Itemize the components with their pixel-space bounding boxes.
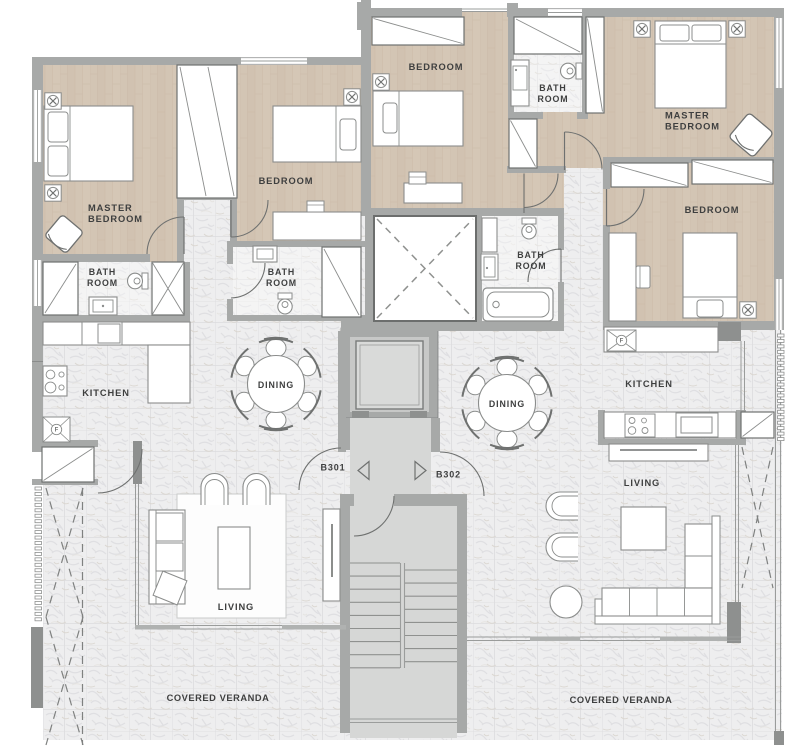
svg-text:ROOM: ROOM: [87, 278, 118, 288]
svg-text:B302: B302: [436, 470, 461, 480]
svg-text:F: F: [55, 428, 59, 434]
svg-text:B301: B301: [320, 463, 345, 473]
svg-text:LIVING: LIVING: [218, 602, 254, 612]
svg-text:BEDROOM: BEDROOM: [665, 122, 720, 132]
svg-text:BEDROOM: BEDROOM: [259, 176, 314, 186]
svg-text:ROOM: ROOM: [538, 94, 569, 104]
svg-text:DINING: DINING: [258, 380, 294, 390]
svg-text:KITCHEN: KITCHEN: [625, 379, 673, 389]
svg-text:BEDROOM: BEDROOM: [685, 205, 740, 215]
svg-text:COVERED VERANDA: COVERED VERANDA: [167, 693, 270, 703]
svg-text:ROOM: ROOM: [266, 278, 297, 288]
svg-text:F: F: [620, 339, 624, 345]
svg-text:ROOM: ROOM: [516, 261, 547, 271]
svg-text:BATH: BATH: [539, 83, 566, 93]
svg-text:BATH: BATH: [517, 250, 544, 260]
svg-text:BEDROOM: BEDROOM: [88, 214, 143, 224]
svg-text:COVERED VERANDA: COVERED VERANDA: [570, 695, 673, 705]
svg-text:DINING: DINING: [489, 399, 525, 409]
svg-text:MASTER: MASTER: [88, 203, 133, 213]
svg-text:KITCHEN: KITCHEN: [82, 388, 130, 398]
svg-text:BATH: BATH: [89, 267, 116, 277]
svg-text:LIVING: LIVING: [624, 478, 660, 488]
svg-text:MASTER: MASTER: [665, 111, 710, 121]
svg-text:BATH: BATH: [268, 267, 295, 277]
svg-text:BEDROOM: BEDROOM: [409, 62, 464, 72]
